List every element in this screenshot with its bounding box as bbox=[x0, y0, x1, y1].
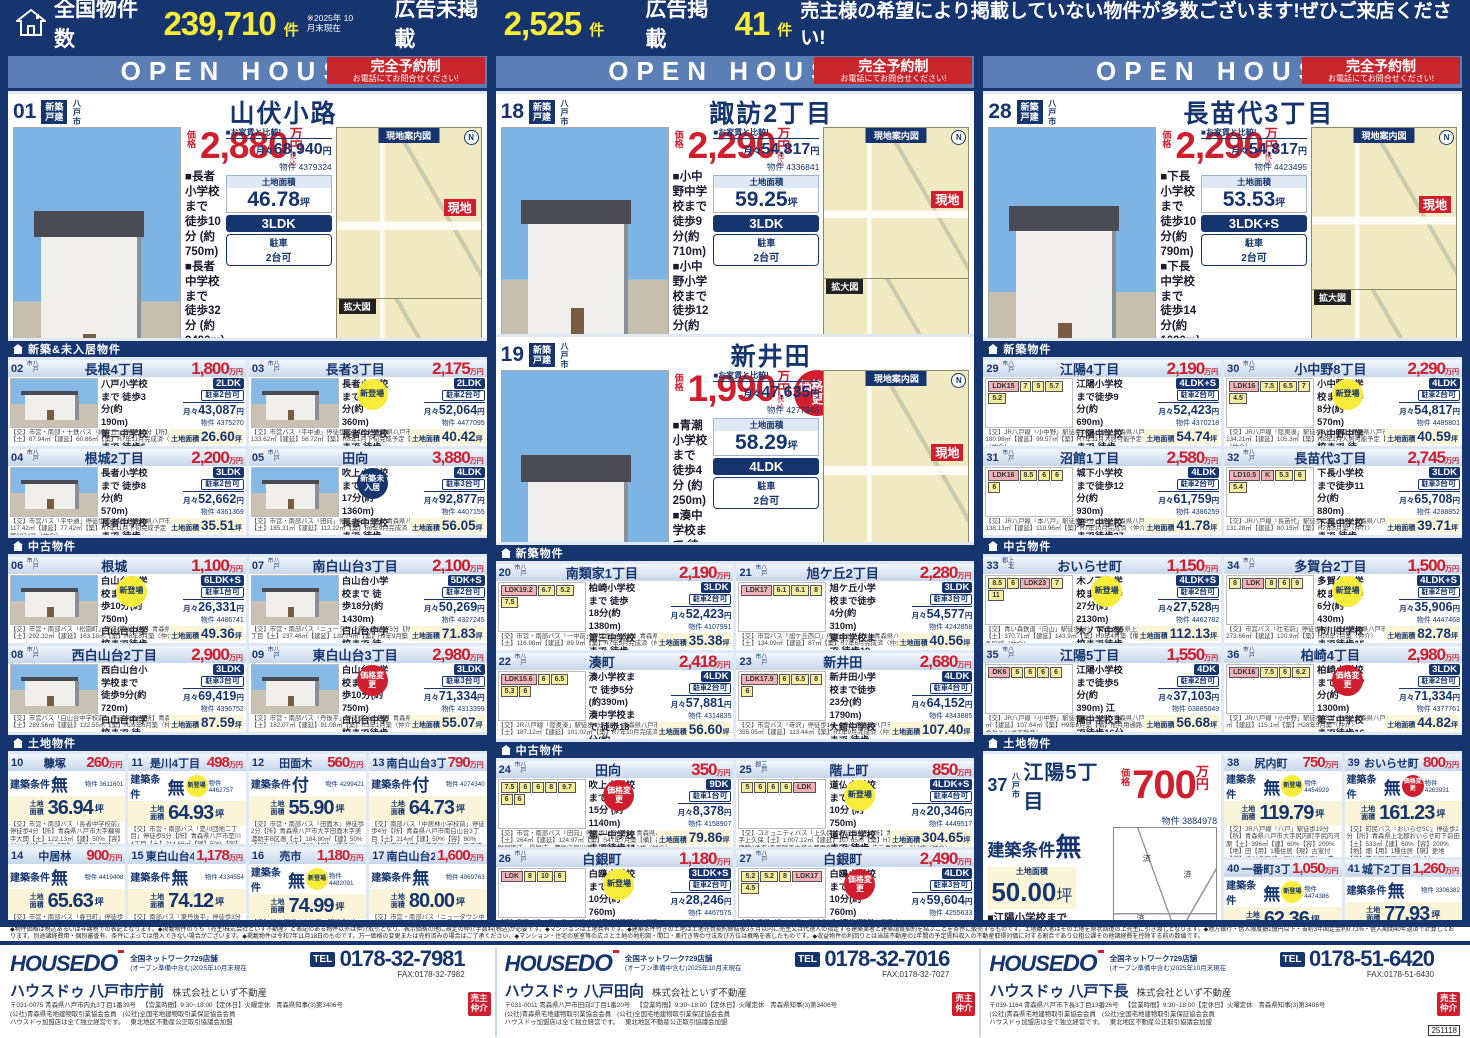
city-label: 八戸市 bbox=[25, 557, 37, 574]
layout-badge: 4LDK+S bbox=[1176, 575, 1219, 586]
room-size: LDK15 bbox=[988, 381, 1018, 392]
property-number: 31 bbox=[986, 452, 998, 464]
floor-plan: 8LDK869 bbox=[1227, 576, 1313, 591]
fax-number: FAX:0178-51-6430 bbox=[1280, 971, 1434, 979]
land-area: 土地面積 44.82坪 bbox=[1385, 715, 1460, 730]
property-id: 物件 4343885 bbox=[929, 711, 972, 721]
section-header: 土地物件 bbox=[8, 735, 487, 751]
land-area: 土地面積64.73坪 bbox=[369, 796, 486, 821]
land-area: 土地面積 39.71坪 bbox=[1385, 518, 1460, 533]
property-id: 物件 4377761 bbox=[1417, 704, 1460, 714]
floor-plan: 5.25.28LDK174.5 bbox=[739, 869, 825, 896]
land-area: 土地面積 71.83坪 bbox=[410, 626, 485, 641]
land-area: 土地面積 56.05坪 bbox=[410, 518, 485, 533]
land-area: 土地面積 60.05坪 bbox=[898, 919, 973, 920]
house-illustration bbox=[528, 482, 624, 542]
room-size: 5 bbox=[1032, 381, 1044, 392]
monthly-payment: 月々57,881円 bbox=[671, 695, 732, 710]
housedo-logo: HOUSEDO bbox=[10, 950, 124, 978]
section-icon bbox=[988, 738, 998, 748]
price: 2,200万円 bbox=[191, 449, 243, 468]
section-header: 新築物件 bbox=[496, 545, 975, 561]
property-number: 08 bbox=[11, 649, 23, 661]
property-number: 03 bbox=[252, 363, 264, 375]
city-label: 八戸市 bbox=[754, 850, 766, 867]
floor-plan: 7.56689.766 bbox=[499, 780, 585, 807]
site-marker: 現地 bbox=[444, 199, 476, 216]
floor-plan: DK66666 bbox=[986, 665, 1072, 680]
flyer-column: OPEN HOUSE 完全予約制お電話にてお問合せください! 01 新築戸建 八… bbox=[8, 52, 487, 920]
property-thumbnail: DK66666 bbox=[985, 664, 1073, 714]
land-area: 土地面積74.12坪 bbox=[128, 889, 245, 914]
layout-badge: 3LDK bbox=[1429, 467, 1460, 478]
price: 2,900万円 bbox=[191, 646, 243, 665]
city-label: 八戸市 bbox=[754, 564, 766, 581]
parking-badge: 駐車4台可 bbox=[930, 791, 972, 802]
property-id: 物件 4462782 bbox=[1176, 615, 1219, 625]
parking-badge: 駐車2台可 bbox=[1418, 390, 1460, 401]
network-count: 全国ネットワーク729店舗(オープン準備中含む)2025年10月末現在 bbox=[625, 954, 742, 973]
fax-number: FAX:0178-32-7027 bbox=[795, 971, 949, 979]
land-card: 15 東白山台4丁目 1,178万円 建築条件無 物件 4334554 土地面積… bbox=[128, 847, 245, 920]
parking-badge: 駐車2台可 bbox=[1177, 676, 1219, 687]
land-area: 土地面積 56.60坪 bbox=[657, 722, 732, 737]
land-area: 土地面積 79.86坪 bbox=[657, 830, 732, 845]
room-size: 6 bbox=[1278, 578, 1290, 589]
property-name: 湊町 bbox=[527, 653, 677, 671]
floor-plan: LDK19.26.75.27.5 bbox=[499, 583, 585, 610]
price: 498万円 bbox=[207, 754, 243, 771]
property-id: 物件 4485801 bbox=[1417, 418, 1460, 428]
parking-badge: 駐車3台可 bbox=[930, 880, 972, 891]
section-icon bbox=[501, 548, 511, 558]
property-number: 19 bbox=[501, 343, 524, 367]
price: 1,550万円 bbox=[1167, 646, 1219, 665]
layout-badge: 5DK+S bbox=[448, 575, 485, 586]
price: 1,180万円 bbox=[317, 847, 364, 864]
property-name: 田向 bbox=[280, 449, 430, 467]
price: 850万円 bbox=[932, 761, 971, 780]
location-map: 現地案内図 N 現地 拡大図 現地 カーナビ案内/八戸市諏訪2丁目8-3付近 bbox=[823, 127, 969, 334]
floor-plan: LDK167.56.574.5 bbox=[1227, 379, 1313, 406]
city-label: 八戸市 bbox=[266, 557, 278, 574]
room-size: 6.1 bbox=[791, 585, 809, 596]
property-thumbnail: LDK8106 bbox=[498, 868, 586, 918]
city-label: 八戸市 bbox=[513, 761, 525, 778]
price-label: 価格 bbox=[1160, 130, 1173, 148]
property-number: 18 bbox=[501, 100, 524, 124]
parking-badge: 駐車2台可 bbox=[442, 587, 484, 598]
reservation-badge: 完全予約制お電話にてお問合せください! bbox=[1302, 57, 1460, 84]
room-size: K bbox=[1261, 470, 1274, 481]
property-name: 南白山台2丁目 bbox=[386, 848, 435, 864]
house-illustration bbox=[266, 592, 316, 617]
room-size: 9.7 bbox=[558, 782, 576, 793]
status-badge: 新登場 bbox=[1281, 881, 1303, 903]
page-header: 全国物件数 239,710 件 ※2025年 10月末現在 広告未掲載 2,52… bbox=[0, 0, 1470, 46]
listings-area: OPEN HOUSE 完全予約制お電話にてお問合せください! 01 新築戸建 八… bbox=[0, 46, 1470, 926]
property-number: 27 bbox=[739, 853, 751, 865]
land-area: 土地面積 40.56坪 bbox=[898, 633, 973, 648]
room-size: 6 bbox=[1051, 470, 1063, 481]
room-size: LD10.5 bbox=[1229, 470, 1260, 481]
property-name: 小中野8丁目 bbox=[1255, 360, 1405, 378]
city-label: 八戸市 bbox=[266, 449, 278, 466]
property-number: 12 bbox=[252, 757, 264, 769]
monthly-payment: 月々65,708円 bbox=[1399, 491, 1460, 506]
section-header: 中古物件 bbox=[983, 538, 1462, 554]
land-area: 土地面積 54.74坪 bbox=[1144, 429, 1219, 444]
property-details: 【交】市営・南部バス「田面木」停徒歩2分【所】青森県八戸市大字田面木字美濃助平B… bbox=[249, 821, 366, 844]
property-name: 江陽5丁目 bbox=[1015, 646, 1165, 664]
property-number: 28 bbox=[988, 100, 1011, 124]
school-distances: ■小中野中学校まで 徒歩9分(約710m)■小中野小学校まで 徒歩12分(約96… bbox=[673, 170, 710, 334]
property-details: 【交】市営・南部バス「長者中学校前」停徒歩4分【所】青森県八戸市大字糠塚字大開【… bbox=[8, 821, 125, 844]
site-marker: 現地 bbox=[931, 444, 963, 461]
phone-number: 0178-32-7981 bbox=[340, 948, 465, 971]
city-label: 八戸市 bbox=[560, 342, 568, 369]
room-size: 4.5 bbox=[741, 883, 759, 894]
property-number: 11 bbox=[131, 757, 143, 769]
building-condition: 建築条件無 物件 3611601 bbox=[8, 771, 125, 796]
section-icon bbox=[501, 745, 511, 755]
location-map: 現地案内図 N 現地 拡大図 現地 カーナビ案内/青森県八戸市長苗代3丁目15-… bbox=[1311, 127, 1457, 338]
building-condition: 建築条件無 新登場 物件 4482091 bbox=[249, 864, 366, 894]
room-size: 7 bbox=[1051, 578, 1063, 589]
layout-badge: 4LDK bbox=[701, 671, 732, 682]
status-badge: 価格変更 bbox=[1332, 665, 1363, 696]
property-id: 物件 4069763 bbox=[446, 872, 485, 881]
property-thumbnail bbox=[251, 378, 339, 428]
property-number: 26 bbox=[499, 853, 511, 865]
floor-plan: LDK15.666.55.36 bbox=[499, 672, 585, 699]
layout-badge: 3LDK bbox=[701, 582, 732, 593]
school-distances: ■江陽小学校まで 徒歩5分 (約380m)■江陽中学校まで 徒歩16分 (約12… bbox=[987, 912, 1110, 920]
layout-badge: 3LDK+S bbox=[689, 868, 732, 879]
property-number: 16 bbox=[252, 850, 264, 862]
property-card: 05 八戸市 田向 3,880万円 吹上小学校まで 徒歩17分(約1360m)長… bbox=[249, 449, 487, 535]
house-illustration bbox=[528, 224, 624, 334]
property-name: 長者3丁目 bbox=[280, 360, 430, 378]
property-name: 西白山台2丁目 bbox=[39, 646, 189, 664]
land-area: 土地面積59.25坪 bbox=[713, 175, 819, 213]
room-size: 6 bbox=[554, 871, 566, 882]
property-number: 33 bbox=[986, 560, 998, 572]
monthly-payment: 月々43,087円 bbox=[183, 402, 244, 417]
property-card: 36 八戸市 柏崎4丁目 2,980万円 LDK167.566.2 柏崎小学校ま… bbox=[1224, 646, 1462, 732]
land-area: 土地面積 82.78坪 bbox=[1385, 626, 1460, 641]
land-card: 16 売市 1,180万円 建築条件無 新登場 物件 4482091 土地面積7… bbox=[249, 847, 366, 920]
property-id: 物件 4274340 bbox=[446, 779, 485, 788]
seller-agent-badge: 売主仲介 bbox=[1437, 992, 1460, 1016]
housedo-logo: HOUSEDO bbox=[989, 950, 1103, 978]
real-estate-flyer: 全国物件数 239,710 件 ※2025年 10月末現在 広告未掲載 2,52… bbox=[0, 0, 1470, 1038]
room-size: 6 bbox=[501, 794, 513, 805]
city-label: 八戸市 bbox=[1001, 646, 1013, 663]
status-badge: 価格変更 bbox=[357, 665, 388, 696]
monthly-payment: 月々27,528円 bbox=[1158, 599, 1219, 614]
price: 2,980万円 bbox=[1407, 646, 1459, 665]
price: 350万円 bbox=[691, 761, 730, 780]
room-size: LDK23 bbox=[1020, 578, 1050, 589]
property-number: 35 bbox=[986, 649, 998, 661]
house-illustration bbox=[25, 681, 75, 706]
room-size: 6 bbox=[779, 674, 791, 685]
layout-badge: 3LDK bbox=[1429, 664, 1460, 675]
room-size: LDK17.9 bbox=[741, 674, 777, 685]
status-badge: 新登場 bbox=[357, 379, 388, 410]
city-label: 八戸市 bbox=[1001, 449, 1013, 466]
property-thumbnail: LD10.5K5.365.4 bbox=[1226, 467, 1314, 517]
store-block: HOUSEDO 全国ネットワーク729店舗(オープン準備中含む)2025年10月… bbox=[495, 948, 976, 1037]
price: 1,260万円 bbox=[1412, 860, 1459, 877]
layout-badge: 4LDK+S bbox=[930, 779, 973, 790]
property-card: 27 八戸市 白銀町 2,490万円 5.25.28LDK174.5 白鴎小学校… bbox=[736, 850, 974, 920]
rent-compare-label: ■お家賃と比較! bbox=[226, 127, 332, 139]
property-name: 南類家1丁目 bbox=[527, 564, 677, 582]
property-name: 尻内町 bbox=[1241, 755, 1300, 771]
property-id: 物件 3611601 bbox=[85, 779, 123, 788]
property-name: 沼館1丁目 bbox=[1015, 449, 1165, 467]
property-id: 物件 4327245 bbox=[441, 615, 484, 625]
floor-plan: LDK176.16.18 bbox=[739, 583, 825, 598]
house-illustration bbox=[1016, 231, 1112, 338]
house-icon bbox=[16, 9, 46, 37]
reservation-badge: 完全予約制お電話にてお問合せください! bbox=[814, 57, 972, 84]
layout-badge: 4LDK bbox=[942, 868, 973, 879]
property-name: 旭ケ丘2丁目 bbox=[768, 564, 918, 582]
price: 1,180万円 bbox=[679, 850, 731, 869]
room-size: 6 bbox=[1279, 667, 1291, 678]
property-id: 物件 4467575 bbox=[688, 908, 731, 918]
section-header: 新築物件 bbox=[983, 341, 1462, 357]
land-card: 12 田面木 560万円 建築条件付 物件 4299421 土地面積55.90坪… bbox=[249, 754, 366, 844]
room-size: 5.4 bbox=[1229, 482, 1247, 493]
building-condition: 建築条件無 物件 4069763 bbox=[369, 864, 486, 889]
property-number: 01 bbox=[13, 100, 36, 124]
property-name: 一番町3丁目 bbox=[1241, 861, 1290, 877]
property-thumbnail bbox=[251, 664, 339, 714]
phone-number: 0178-51-6420 bbox=[1309, 948, 1434, 971]
property-number: 21 bbox=[739, 567, 751, 579]
city-label: 八戸市 bbox=[1241, 557, 1253, 574]
property-number: 40 bbox=[1227, 863, 1239, 875]
section-header: 中古物件 bbox=[8, 538, 487, 554]
land-area: 土地面積55.90坪 bbox=[249, 796, 366, 821]
open-house-banner: OPEN HOUSE 完全予約制お電話にてお問合せください! bbox=[983, 52, 1462, 91]
property-name: 売市 bbox=[266, 848, 315, 864]
location-map: 現地案内図 N 現地 拡大図 現地 カーナビ案内/八戸市新田風渡2-14付近 bbox=[823, 370, 969, 542]
property-thumbnail: LDK167.56.574.5 bbox=[1226, 378, 1314, 428]
unlisted-label: 広告未掲載 bbox=[394, 0, 495, 53]
price: 2,418万円 bbox=[679, 653, 731, 672]
monthly-payment: 月々68,940円 bbox=[226, 141, 332, 159]
property-number: 17 bbox=[372, 850, 384, 862]
room-size: 6 bbox=[1050, 667, 1062, 678]
room-size: 5.2 bbox=[556, 585, 574, 596]
monthly-payment: 月々71,334円 bbox=[1399, 688, 1460, 703]
company-name: 株式会社といず不動産 bbox=[1137, 985, 1232, 999]
property-name: 長根4丁目 bbox=[39, 360, 189, 378]
property-id: 物件 4386259 bbox=[1176, 507, 1219, 517]
price: 1,600万円 bbox=[437, 847, 484, 864]
city-label: 八戸市 bbox=[1241, 646, 1253, 663]
store-name: ハウスドゥ 八戸市庁前 bbox=[10, 980, 164, 1001]
room-size: 6 bbox=[1024, 667, 1036, 678]
floor-plan: LDK167.566.2 bbox=[1227, 665, 1313, 680]
price-label: 価格 bbox=[673, 373, 686, 391]
property-id: 物件 4277946 bbox=[713, 404, 819, 416]
parking-badge: 駐車4台可 bbox=[930, 683, 972, 694]
property-card: 26 八戸市 白銀町 1,180万円 LDK8106 白鴎小学校まで 徒歩10分… bbox=[496, 850, 734, 920]
property-thumbnail: LDK168.5666 bbox=[985, 467, 1073, 517]
property-number: 39 bbox=[1348, 757, 1360, 769]
city-label: 八戸市 bbox=[1241, 449, 1253, 466]
compass-icon: N bbox=[951, 373, 966, 388]
room-size: 7.5 bbox=[1260, 381, 1278, 392]
parking-badge: 駐車1台可 bbox=[201, 587, 243, 598]
section-header: 土地物件 bbox=[983, 735, 1462, 751]
property-name: 多賀台2丁目 bbox=[1255, 557, 1405, 575]
monthly-payment: 月々52,423円 bbox=[671, 606, 732, 621]
property-card: 32 八戸市 長苗代3丁目 2,745万円 LD10.5K5.365.4 下長小… bbox=[1224, 449, 1462, 535]
city-label: 八戸市 bbox=[25, 646, 37, 663]
property-number: 34 bbox=[1227, 560, 1239, 572]
house-illustration bbox=[266, 681, 316, 706]
layout-badge: 4LDK bbox=[713, 458, 819, 475]
city-label: 八戸市 bbox=[1048, 99, 1056, 126]
city-label: 八戸市 bbox=[560, 99, 568, 126]
property-name: 城下2丁目 bbox=[1362, 861, 1411, 877]
price: 260万円 bbox=[86, 754, 122, 771]
land-area: 土地面積 26.60坪 bbox=[169, 429, 244, 444]
house-illustration bbox=[266, 484, 316, 509]
status-badge: 新登場 bbox=[1332, 379, 1363, 410]
house-illustration bbox=[266, 395, 316, 420]
building-condition: 建築条件無 bbox=[987, 827, 1110, 864]
property-thumbnail: 8.56LDK23711 bbox=[985, 575, 1073, 625]
property-name: 江陽5丁目 bbox=[1023, 756, 1115, 814]
property-id: 物件 4419408 bbox=[85, 872, 124, 881]
room-size: LDK15.6 bbox=[501, 674, 537, 685]
room-size: 5.2 bbox=[741, 871, 759, 882]
property-thumbnail: 7.56689.766 bbox=[498, 779, 586, 829]
room-size: 6.2 bbox=[1292, 667, 1310, 678]
property-thumbnail: 8LDK869 bbox=[1226, 575, 1314, 625]
property-thumbnail bbox=[10, 575, 98, 625]
room-size: 6 bbox=[519, 686, 531, 697]
room-size: 7 bbox=[1020, 381, 1032, 392]
room-size: 8 bbox=[1229, 578, 1241, 589]
room-size: 8.5 bbox=[988, 578, 1006, 589]
store-info: 〒031-0011 青森県八戸市田向2丁目1番20号【営業時間】9:30~18:… bbox=[505, 1002, 950, 1028]
property-name: 根城2丁目 bbox=[39, 449, 189, 467]
layout-badge: 4LDK bbox=[1429, 378, 1460, 389]
property-number: 23 bbox=[739, 656, 751, 668]
city-label: 八戸市 bbox=[1241, 360, 1253, 377]
monthly-payment: 月々8,378円 bbox=[678, 803, 732, 818]
parking-badge: 駐車1台可 bbox=[689, 791, 731, 802]
property-id: 物件 4370218 bbox=[1176, 418, 1219, 428]
property-number: 10 bbox=[11, 757, 23, 769]
phone-block: TEL 0178-32-7016 FAX:0178-32-7027 bbox=[795, 948, 949, 979]
land-card: 40 一番町3丁目 1,050万円 建築条件無 新登場 物件 4474386 土… bbox=[1224, 860, 1341, 920]
property-number: 32 bbox=[1227, 452, 1239, 464]
store-block: HOUSEDO 全国ネットワーク729店舗(オープン準備中含む)2025年10月… bbox=[10, 948, 491, 1037]
room-size: LDK16 bbox=[1229, 381, 1259, 392]
city-label: 八戸市 bbox=[1011, 772, 1019, 799]
room-size: LDK19.2 bbox=[501, 585, 537, 596]
property-thumbnail bbox=[10, 378, 98, 428]
room-size: 11 bbox=[988, 590, 1003, 601]
seller-agent-badge: 売主仲介 bbox=[952, 992, 975, 1016]
parking-badge: 駐車2台可 bbox=[689, 683, 731, 694]
property-number: 04 bbox=[11, 452, 23, 464]
land-area: 土地面積74.99坪 bbox=[249, 894, 366, 919]
site-marker: 現地 bbox=[1419, 196, 1451, 213]
open-house-banner: OPEN HOUSE 完全予約制お電話にてお問合せください! bbox=[8, 52, 487, 91]
room-size: 6 bbox=[754, 782, 766, 793]
room-size: 7.5 bbox=[501, 597, 519, 608]
room-size: 6 bbox=[532, 782, 544, 793]
property-id: 物件 4447468 bbox=[1417, 615, 1460, 625]
property-number: 24 bbox=[499, 764, 511, 776]
layout-badge: 6LDK+S bbox=[201, 575, 244, 586]
monthly-payment: 月々20,346円 bbox=[912, 803, 973, 818]
room-size: 6 bbox=[741, 686, 753, 697]
price: 2,580万円 bbox=[1167, 449, 1219, 468]
monthly-payment: 月々50,269円 bbox=[424, 599, 485, 614]
property-id: 物件 4407155 bbox=[441, 507, 484, 517]
featured-property-card: 19 新築戸建 八戸市 新井田 2025年9月撮影 価格 1,990 万円税込 … bbox=[496, 337, 975, 542]
listed-label: 広告掲載 bbox=[645, 0, 726, 53]
property-number: 38 bbox=[1227, 757, 1239, 769]
land-area: 土地面積119.79坪 bbox=[1224, 801, 1341, 826]
property-thumbnail bbox=[251, 575, 339, 625]
property-photo: 2025年9月撮影 bbox=[501, 370, 669, 542]
land-area: 土地面積 40.42坪 bbox=[410, 429, 485, 444]
floor-plan: LDK17.966.586 bbox=[739, 672, 825, 699]
city-label: 八戸市 bbox=[513, 564, 525, 581]
land-area: 土地面積62.36坪 bbox=[1224, 907, 1341, 920]
site-marker: 現地 bbox=[931, 191, 963, 208]
room-size: 6 bbox=[1038, 470, 1050, 481]
land-area: 土地面積 79.53坪 bbox=[657, 919, 732, 920]
parking-badge: 駐車3台可 bbox=[442, 676, 484, 687]
land-area: 土地面積 56.68坪 bbox=[1144, 715, 1219, 730]
property-name: 東白山台3丁目 bbox=[280, 646, 430, 664]
network-count: 全国ネットワーク729店舗(オープン準備中含む)2025年10月末現在 bbox=[130, 954, 247, 973]
room-size: 5.3 bbox=[501, 686, 519, 697]
property-card: 22 八戸市 湊町 2,418万円 LDK15.666.55.36 湊小学校まで… bbox=[496, 653, 734, 739]
property-number: 15 bbox=[131, 850, 143, 862]
parking-badge: 駐車2台可 bbox=[1201, 234, 1307, 266]
property-details: 【交】JR八戸線「八戸」駅徒歩19分【所】青森県八戸市大字尻内町字尻内河原【土】… bbox=[1224, 826, 1341, 857]
room-size: 5 bbox=[741, 782, 753, 793]
property-name: おいらせ町 bbox=[1015, 557, 1165, 575]
property-name: 新井田 bbox=[768, 653, 918, 671]
company-name: 株式会社といず不動産 bbox=[652, 985, 747, 999]
city-label: 三戸郡 bbox=[754, 761, 766, 778]
price-label: 価格 bbox=[185, 130, 198, 148]
land-area: 土地面積58.29坪 bbox=[713, 418, 819, 456]
price: 2,490万円 bbox=[920, 850, 972, 869]
property-type-badge: 新築戸建 bbox=[529, 343, 555, 368]
compass-icon: N bbox=[951, 130, 966, 145]
property-thumbnail: LDK15755.75.2 bbox=[985, 378, 1073, 428]
status-badge: 価格変更 bbox=[1402, 775, 1424, 797]
property-photo: イメージパース bbox=[501, 127, 669, 334]
